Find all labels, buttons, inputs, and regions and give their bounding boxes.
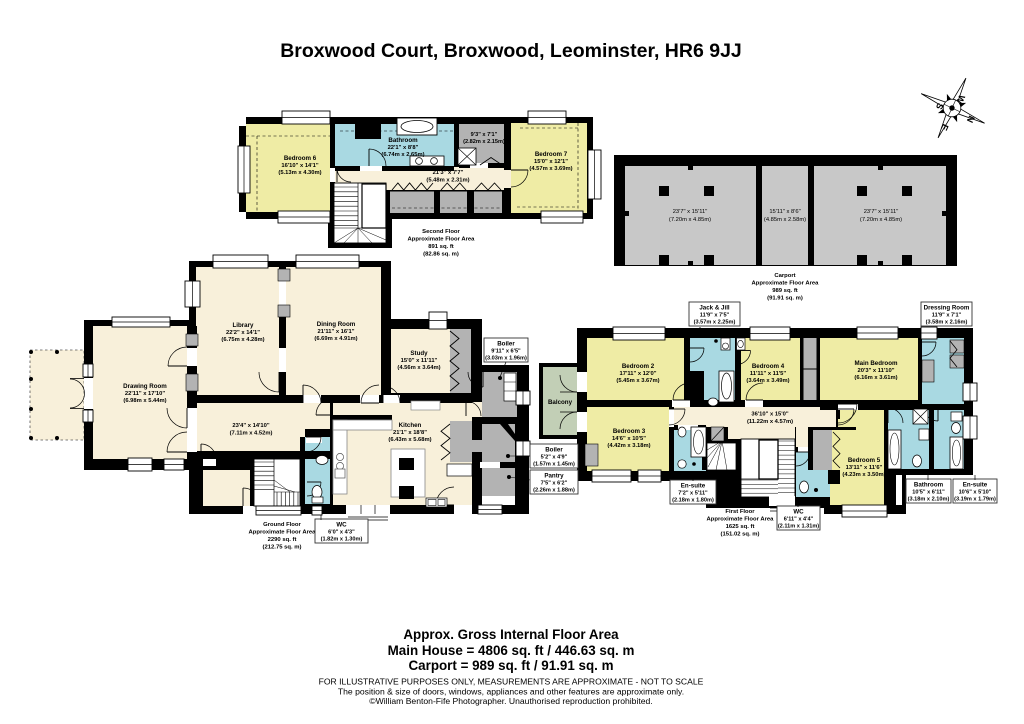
svg-text:Jack & Jill: Jack & Jill: [699, 305, 730, 312]
svg-text:(3.18m x 2.10m): (3.18m x 2.10m): [908, 497, 950, 503]
svg-text:6'11" x 4'4": 6'11" x 4'4": [784, 517, 814, 523]
svg-text:Dressing Room: Dressing Room: [924, 305, 970, 312]
svg-text:©William Benton-Fife Photograp: ©William Benton-Fife Photographer. Unaut…: [369, 696, 652, 706]
svg-text:21'1" x 18'8": 21'1" x 18'8": [393, 430, 427, 436]
svg-text:WC: WC: [336, 522, 347, 529]
svg-text:(2.82m x 2.15m): (2.82m x 2.15m): [463, 139, 505, 145]
svg-text:36'10" x 15'0": 36'10" x 15'0": [751, 412, 789, 418]
svg-text:(5.48m x 2.31m): (5.48m x 2.31m): [426, 178, 469, 184]
svg-text:Drawing Room: Drawing Room: [123, 383, 167, 390]
svg-text:Second Floor: Second Floor: [422, 229, 460, 235]
svg-text:Study: Study: [410, 350, 428, 357]
svg-text:The position & size of doors,: The position & size of doors, windows, a…: [338, 687, 684, 697]
svg-text:Dining Room: Dining Room: [317, 321, 356, 328]
svg-text:Bedroom 2: Bedroom 2: [622, 363, 655, 370]
svg-text:(6.74m x 2.65m): (6.74m x 2.65m): [381, 152, 424, 158]
svg-text:Carport = 989 sq. ft / 91.91 s: Carport = 989 sq. ft / 91.91 sq. m: [408, 658, 613, 673]
svg-text:23'7" x 15'11": 23'7" x 15'11": [673, 209, 708, 215]
svg-text:(1.57m x 1.45m): (1.57m x 1.45m): [533, 462, 575, 468]
svg-text:(3.03m x 1.96m): (3.03m x 1.96m): [485, 356, 527, 362]
svg-text:(2.18m x 1.80m): (2.18m x 1.80m): [672, 498, 714, 504]
svg-text:En-suite: En-suite: [681, 483, 706, 490]
svg-text:21'3" x 7'7": 21'3" x 7'7": [433, 170, 464, 176]
svg-text:(3.64m x 3.49m): (3.64m x 3.49m): [746, 378, 789, 384]
svg-text:Library: Library: [233, 322, 255, 329]
svg-text:Pantry: Pantry: [544, 473, 564, 480]
svg-text:10'6" x 5'10": 10'6" x 5'10": [959, 490, 992, 496]
svg-text:7'2" x 5'11": 7'2" x 5'11": [678, 491, 708, 497]
svg-text:23'4" x 14'10": 23'4" x 14'10": [232, 423, 270, 429]
svg-text:(2.11m x 1.31m): (2.11m x 1.31m): [778, 524, 819, 530]
svg-text:Approx. Gross Internal Floor A: Approx. Gross Internal Floor Area: [403, 627, 619, 642]
svg-text:Bathroom: Bathroom: [914, 482, 944, 489]
svg-text:15'11" x 8'6": 15'11" x 8'6": [769, 209, 800, 215]
svg-text:En-suite: En-suite: [963, 482, 988, 489]
svg-text:Broxwood Court, Broxwood, Leom: Broxwood Court, Broxwood, Leominster, HR…: [280, 40, 742, 62]
svg-text:(5.13m x 4.30m): (5.13m x 4.30m): [278, 170, 321, 176]
svg-text:1625 sq. ft: 1625 sq. ft: [726, 524, 755, 530]
svg-text:(2.26m x 1.88m): (2.26m x 1.88m): [533, 488, 575, 494]
svg-text:11'9" x 7'5": 11'9" x 7'5": [700, 313, 730, 319]
svg-text:(7.20m x 4.85m): (7.20m x 4.85m): [669, 217, 711, 223]
svg-text:9'11" x 6'5": 9'11" x 6'5": [491, 349, 521, 355]
svg-text:10'5" x 6'11": 10'5" x 6'11": [912, 490, 945, 496]
svg-text:(6.75m x 4.28m): (6.75m x 4.28m): [221, 337, 264, 343]
svg-text:(6.98m x 5.44m): (6.98m x 5.44m): [123, 398, 166, 404]
svg-text:Approximate Floor Area: Approximate Floor Area: [408, 237, 476, 243]
svg-text:(7.20m x 4.85m): (7.20m x 4.85m): [860, 217, 902, 223]
svg-text:15'0" x 11'11": 15'0" x 11'11": [401, 358, 438, 364]
svg-text:(6.16m x 3.61m): (6.16m x 3.61m): [854, 375, 897, 381]
svg-text:20'3" x 11'10": 20'3" x 11'10": [858, 368, 895, 374]
svg-text:21'11" x 16'1": 21'11" x 16'1": [318, 329, 355, 335]
svg-text:Boiler: Boiler: [545, 447, 563, 454]
svg-text:17'11" x 12'0": 17'11" x 12'0": [620, 371, 657, 377]
svg-text:(7.11m x 4.52m): (7.11m x 4.52m): [230, 431, 273, 437]
svg-text:(5.45m x 3.67m): (5.45m x 3.67m): [616, 378, 659, 384]
svg-text:989 sq. ft: 989 sq. ft: [772, 288, 798, 294]
svg-text:(3.57m x 2.25m): (3.57m x 2.25m): [694, 320, 736, 326]
svg-text:5'2" x 4'9": 5'2" x 4'9": [541, 455, 568, 461]
svg-text:14'6" x 10'5": 14'6" x 10'5": [612, 436, 646, 442]
svg-text:Approximate Floor Area: Approximate Floor Area: [752, 281, 820, 287]
svg-text:(6.43m x 5.68m): (6.43m x 5.68m): [388, 437, 431, 443]
svg-text:(6.69m x 4.91m): (6.69m x 4.91m): [314, 336, 357, 342]
svg-text:Boiler: Boiler: [497, 341, 515, 348]
svg-text:6'0" x 4'3": 6'0" x 4'3": [328, 530, 355, 536]
svg-text:(4.56m x 3.64m): (4.56m x 3.64m): [397, 365, 440, 371]
svg-text:23'7" x 15'11": 23'7" x 15'11": [864, 209, 899, 215]
svg-text:11'11" x 11'5": 11'11" x 11'5": [750, 371, 787, 377]
svg-text:Kitchen: Kitchen: [399, 422, 422, 429]
svg-text:22'2" x 14'1": 22'2" x 14'1": [226, 330, 260, 336]
svg-text:(4.42m x 3.18m): (4.42m x 3.18m): [607, 443, 650, 449]
svg-text:(4.85m x 2.58m): (4.85m x 2.58m): [764, 217, 806, 223]
svg-text:22'11" x 17'10": 22'11" x 17'10": [125, 391, 165, 397]
svg-text:Bathroom: Bathroom: [388, 137, 418, 144]
svg-text:(4.23m x 3.50m): (4.23m x 3.50m): [842, 472, 885, 478]
svg-text:(4.57m x 3.69m): (4.57m x 3.69m): [529, 166, 572, 172]
svg-text:Main House = 4806 sq. ft / 446: Main House = 4806 sq. ft / 446.63 sq. m: [388, 643, 635, 658]
svg-text:FOR ILLUSTRATIVE PURPOSES ONLY: FOR ILLUSTRATIVE PURPOSES ONLY, MEASUREM…: [319, 677, 704, 687]
svg-text:(82.86 sq. m): (82.86 sq. m): [423, 252, 459, 258]
svg-text:Approximate Floor Area: Approximate Floor Area: [707, 517, 775, 523]
svg-text:Bedroom 3: Bedroom 3: [613, 428, 646, 435]
svg-text:15'0" x 12'1": 15'0" x 12'1": [534, 159, 568, 165]
svg-text:891 sq. ft: 891 sq. ft: [428, 244, 454, 250]
svg-text:Bedroom 6: Bedroom 6: [284, 155, 317, 162]
svg-text:(91.91 sq. m): (91.91 sq. m): [767, 296, 803, 302]
svg-text:7'5" x 6'2": 7'5" x 6'2": [541, 481, 568, 487]
svg-text:(3.19m x 1.79m): (3.19m x 1.79m): [954, 497, 996, 503]
svg-text:Ground Floor: Ground Floor: [263, 522, 301, 528]
svg-text:Bedroom 5: Bedroom 5: [848, 457, 881, 464]
svg-text:16'10" x 14'1": 16'10" x 14'1": [281, 163, 319, 169]
svg-text:9'3" x 7'1": 9'3" x 7'1": [471, 132, 498, 138]
svg-text:11'9" x 7'1": 11'9" x 7'1": [932, 313, 962, 319]
svg-text:Balcony: Balcony: [548, 399, 573, 406]
svg-text:WC: WC: [793, 509, 804, 516]
svg-text:(151.02 sq. m): (151.02 sq. m): [721, 532, 760, 538]
svg-text:(1.82m x 1.30m): (1.82m x 1.30m): [321, 537, 363, 543]
svg-text:(212.75 sq. m): (212.75 sq. m): [263, 545, 302, 551]
svg-text:Carport: Carport: [774, 273, 795, 279]
svg-text:(3.58m x 2.16m): (3.58m x 2.16m): [926, 320, 968, 326]
svg-text:22'1" x 8'8": 22'1" x 8'8": [388, 145, 419, 151]
svg-text:2290 sq. ft: 2290 sq. ft: [268, 537, 297, 543]
svg-text:Main Bedroom: Main Bedroom: [855, 360, 898, 367]
svg-text:Approximate Floor Area: Approximate Floor Area: [249, 530, 317, 536]
svg-text:Bedroom 4: Bedroom 4: [752, 363, 785, 370]
svg-text:First Floor: First Floor: [725, 509, 755, 515]
svg-text:(11.22m x 4.57m): (11.22m x 4.57m): [747, 419, 793, 425]
svg-text:13'11" x 11'6": 13'11" x 11'6": [846, 465, 883, 471]
svg-text:Bedroom 7: Bedroom 7: [535, 151, 568, 158]
